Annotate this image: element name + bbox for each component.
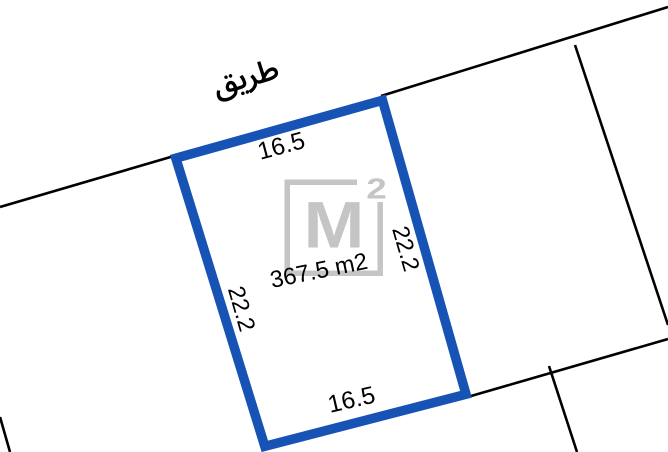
svg-text:2: 2 bbox=[366, 173, 386, 205]
